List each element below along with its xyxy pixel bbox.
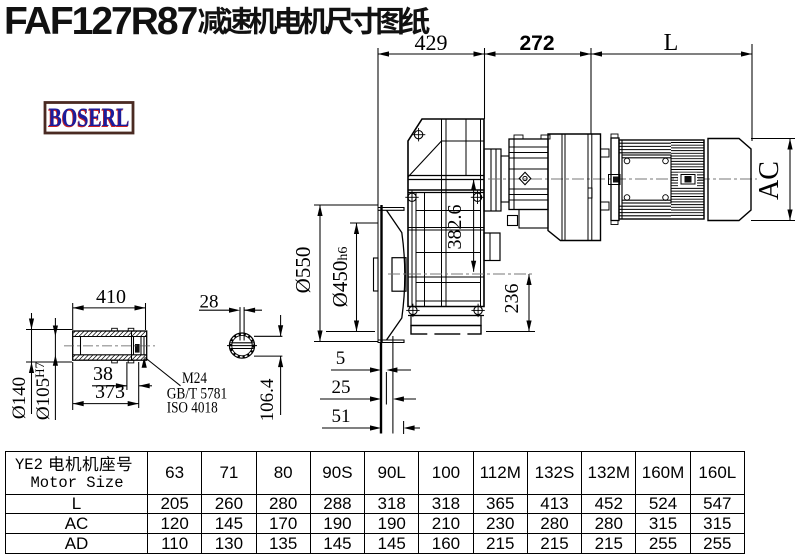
svg-text:L: L (664, 30, 679, 56)
svg-text:Ø105H7: Ø105H7 (32, 361, 54, 420)
svg-text:429: 429 (415, 30, 448, 55)
svg-text:25: 25 (332, 377, 351, 398)
svg-text:FAF127R87: FAF127R87 (4, 0, 197, 43)
svg-text:51: 51 (332, 406, 351, 427)
svg-text:BOSERL: BOSERL (49, 103, 130, 132)
svg-text:272: 272 (519, 32, 554, 55)
svg-text:410: 410 (96, 286, 126, 308)
svg-text:Motor Size: Motor Size (30, 474, 123, 492)
svg-text:Ø140: Ø140 (9, 377, 30, 419)
svg-text:YE2: YE2 (15, 456, 43, 474)
svg-text:ISO 4018: ISO 4018 (167, 400, 218, 417)
svg-text:AC: AC (754, 161, 785, 200)
svg-text:Ø450h6: Ø450h6 (328, 247, 352, 308)
svg-text:373: 373 (95, 381, 125, 403)
svg-text:382.6: 382.6 (444, 205, 466, 250)
svg-text:28: 28 (200, 292, 219, 313)
svg-text:Ø550: Ø550 (291, 247, 315, 294)
svg-text:M24: M24 (182, 370, 207, 387)
svg-text:106.4: 106.4 (257, 378, 278, 421)
svg-text:236: 236 (501, 284, 523, 314)
svg-text:5: 5 (336, 348, 346, 369)
